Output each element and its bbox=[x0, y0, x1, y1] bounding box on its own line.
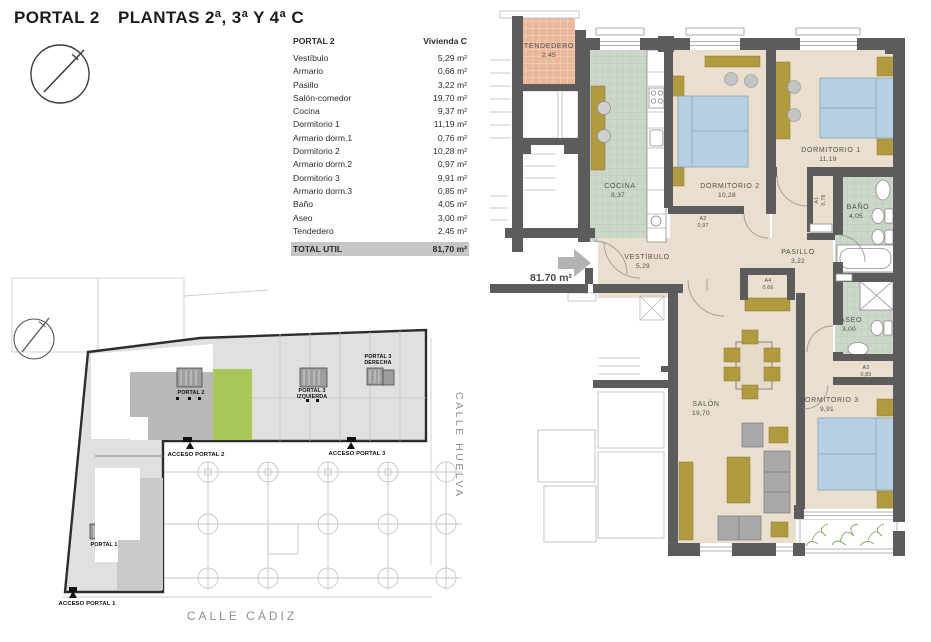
row-label: Tendedero bbox=[293, 226, 334, 236]
table-row: Aseo3,00 m² bbox=[293, 213, 467, 226]
row-label: Dormitorio 3 bbox=[293, 173, 340, 183]
row-value: 10,28 m² bbox=[433, 146, 467, 156]
label-acceso-portal3: ACCESO PORTAL 3 bbox=[329, 451, 387, 457]
row-value: 5,29 m² bbox=[438, 53, 467, 63]
area-dormitorio1: 11,19 bbox=[819, 156, 837, 163]
label-portal3-der-2: DERECHA bbox=[364, 360, 391, 366]
north-compass-icon bbox=[22, 34, 98, 110]
sofa bbox=[764, 451, 790, 513]
brochure-page: { "title": { "portal": "PORTAL 2", "plan… bbox=[0, 0, 931, 642]
label-salon: SALÓN bbox=[692, 399, 719, 408]
label-pasillo: PASILLO bbox=[781, 249, 815, 256]
toilet-icon bbox=[871, 321, 883, 336]
balcony bbox=[800, 519, 897, 553]
sink-bowl bbox=[598, 130, 611, 143]
dishwasher-icon bbox=[651, 216, 661, 226]
washbasin-icon bbox=[848, 343, 868, 356]
portal2-notch bbox=[130, 417, 148, 440]
total-value: 81,70 m² bbox=[433, 244, 467, 254]
area-salon: 19,70 bbox=[692, 410, 710, 417]
label-armario2: A2 bbox=[700, 216, 707, 222]
label-armario4: A4 bbox=[765, 278, 772, 284]
sink-bowl bbox=[598, 102, 611, 115]
area-armario4: 0,66 bbox=[762, 285, 773, 291]
row-label: Dormitorio 1 bbox=[293, 119, 340, 129]
row-label: Aseo bbox=[293, 213, 313, 223]
site-compass-icon bbox=[14, 318, 54, 359]
label-acceso-portal2: ACCESO PORTAL 2 bbox=[168, 452, 226, 458]
row-value: 0,97 m² bbox=[438, 159, 467, 169]
row-value: 0,76 m² bbox=[438, 133, 467, 143]
row-label: Dormitorio 2 bbox=[293, 146, 340, 156]
bed-dorm2 bbox=[678, 96, 748, 167]
table-row: Vestíbulo5,29 m² bbox=[293, 53, 467, 66]
table-row: Dormitorio 111,19 m² bbox=[293, 119, 467, 132]
label-portal2: PORTAL 2 bbox=[178, 390, 205, 396]
sideboard bbox=[718, 516, 761, 540]
area-armario2: 0,97 bbox=[697, 223, 708, 229]
row-value: 3,00 m² bbox=[438, 213, 467, 223]
area-cocina: 9,37 bbox=[611, 192, 625, 199]
site-plan: PORTAL 2 PORTAL 3 IZQUIERDA PORTAL 3 DER… bbox=[0, 270, 470, 642]
label-dormitorio3: DORMITORIO 3 bbox=[799, 397, 859, 404]
page-title-plantas: PLANTAS 2ª, 3ª Y 4ª C bbox=[118, 8, 304, 28]
table-row: Baño4,05 m² bbox=[293, 199, 467, 212]
label-acceso-portal1: ACCESO PORTAL 1 bbox=[59, 601, 117, 607]
page-title-portal: PORTAL 2 bbox=[14, 8, 100, 28]
area-armario3: 0,85 bbox=[860, 372, 871, 378]
area-armario1: 0,76 bbox=[821, 194, 827, 205]
highlighted-unit-c[interactable] bbox=[213, 369, 252, 440]
area-table: PORTAL 2 Vivienda C Vestíbulo5,29 m² Arm… bbox=[293, 36, 467, 256]
table-row: Cocina9,37 m² bbox=[293, 106, 467, 119]
label-armario1: A1 bbox=[814, 197, 820, 204]
label-aseo: ASEO bbox=[840, 317, 862, 324]
area-aseo: 3,00 bbox=[842, 326, 856, 333]
label-portal1: PORTAL 1 bbox=[91, 542, 118, 548]
row-value: 11,19 m² bbox=[434, 119, 467, 129]
label-tendedero: TENDEDERO bbox=[524, 43, 574, 50]
row-value: 9,91 m² bbox=[438, 173, 467, 183]
row-value: 19,70 m² bbox=[433, 93, 467, 103]
total-label: TOTAL UTIL bbox=[293, 244, 342, 254]
table-total-row: TOTAL UTIL 81,70 m² bbox=[291, 242, 469, 256]
table-row: Armario dorm.30,85 m² bbox=[293, 186, 467, 199]
label-cocina: COCINA bbox=[604, 183, 635, 190]
row-label: Armario dorm.3 bbox=[293, 186, 352, 196]
table-row: Pasillo3,22 m² bbox=[293, 80, 467, 93]
row-value: 0,85 m² bbox=[438, 186, 467, 196]
table-row: Armario dorm.10,76 m² bbox=[293, 133, 467, 146]
area-table-header-portal: PORTAL 2 bbox=[293, 36, 335, 53]
label-calle-cadiz: CALLE CÁDIZ bbox=[187, 608, 297, 623]
row-label: Cocina bbox=[293, 106, 320, 116]
area-table-header-vivienda: Vivienda C bbox=[423, 36, 467, 53]
coffee-table bbox=[727, 457, 750, 503]
row-label: Armario bbox=[293, 66, 323, 76]
table-row: Salón-comedor19,70 m² bbox=[293, 93, 467, 106]
toilet-icon bbox=[872, 209, 884, 224]
kitchen-sink-icon bbox=[650, 130, 663, 146]
label-bano: BAÑO bbox=[847, 202, 870, 211]
table-row: Armario dorm.20,97 m² bbox=[293, 159, 467, 172]
row-label: Baño bbox=[293, 199, 313, 209]
kitchen-counter bbox=[591, 86, 605, 170]
area-tendedero: 2,45 bbox=[542, 52, 556, 59]
row-label: Armario dorm.2 bbox=[293, 159, 352, 169]
area-bano: 4,05 bbox=[849, 213, 863, 220]
label-armario3: A3 bbox=[863, 365, 870, 371]
row-label: Armario dorm.1 bbox=[293, 133, 352, 143]
table-row: Armario0,66 m² bbox=[293, 66, 467, 79]
area-dormitorio2: 10,28 bbox=[718, 192, 736, 199]
row-value: 0,66 m² bbox=[438, 66, 467, 76]
row-value: 9,37 m² bbox=[438, 106, 467, 116]
bidet-icon bbox=[872, 230, 884, 245]
area-dormitorio3: 9,91 bbox=[820, 406, 834, 413]
row-label: Pasillo bbox=[293, 80, 318, 90]
row-value: 2,45 m² bbox=[438, 226, 467, 236]
row-label: Salón-comedor bbox=[293, 93, 351, 103]
hall-shelf bbox=[745, 298, 790, 311]
label-dormitorio2: DORMITORIO 2 bbox=[700, 183, 760, 190]
table-row: Dormitorio 39,91 m² bbox=[293, 173, 467, 186]
tendedero-floor bbox=[522, 18, 575, 84]
label-vestibulo: VESTÍBULO bbox=[624, 252, 670, 261]
row-value: 3,22 m² bbox=[438, 80, 467, 90]
tv-stand bbox=[742, 423, 763, 447]
table-row: Tendedero2,45 m² bbox=[293, 226, 467, 239]
washbasin-icon bbox=[876, 180, 890, 200]
row-label: Vestíbulo bbox=[293, 53, 328, 63]
label-portal3-izq-2: IZQUIERDA bbox=[297, 394, 328, 400]
floor-plan: 81.70 m² TENDEDERO 2,45 COCINA 9,37 DORM… bbox=[488, 0, 931, 642]
row-value: 4,05 m² bbox=[438, 199, 467, 209]
label-dormitorio1: DORMITORIO 1 bbox=[801, 147, 861, 154]
area-pasillo: 3,22 bbox=[791, 258, 805, 265]
courtyard-trees bbox=[138, 462, 462, 590]
table-row: Dormitorio 210,28 m² bbox=[293, 146, 467, 159]
bookshelf bbox=[679, 462, 693, 540]
label-calle-huelva: CALLE HUELVA bbox=[453, 392, 465, 499]
area-vestibulo: 5,29 bbox=[636, 263, 650, 270]
total-area-label: 81.70 m² bbox=[530, 272, 573, 284]
area-table-header: PORTAL 2 Vivienda C bbox=[293, 36, 467, 53]
